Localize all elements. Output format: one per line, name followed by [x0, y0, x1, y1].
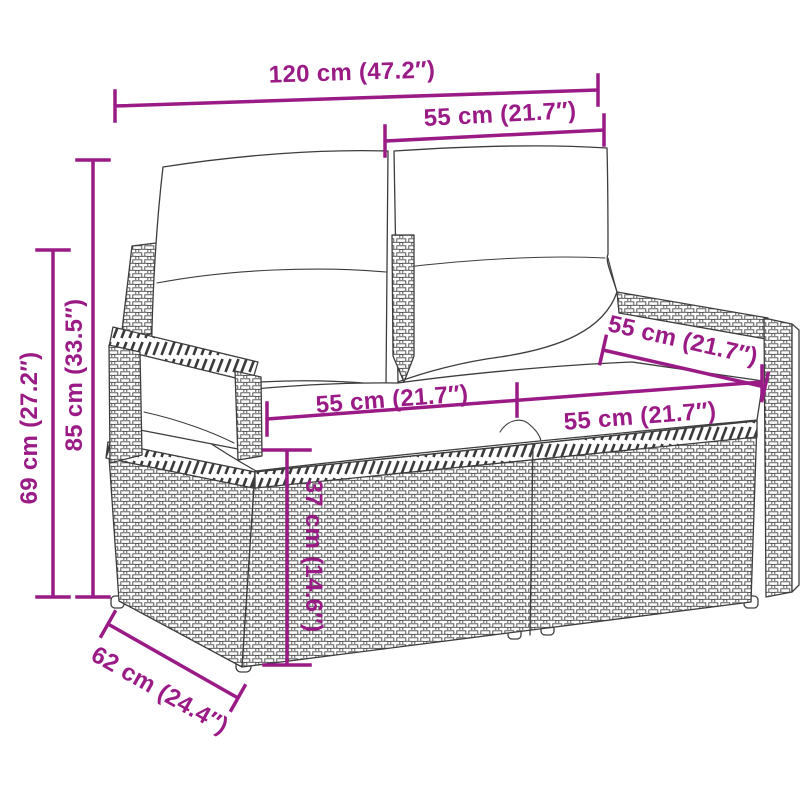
armrest-left-post — [235, 371, 262, 460]
dim-label-overall-height: 85 cm (33.5″) — [61, 299, 88, 452]
dim-label-overall-depth: 62 cm (24.4″) — [87, 641, 233, 740]
back-post-center — [392, 235, 414, 382]
sofa-dimension-figure: 120 cm (47.2″) 55 cm (21.7″) 85 cm (33.5… — [0, 0, 800, 800]
dimension-diagram: 120 cm (47.2″) 55 cm (21.7″) 85 cm (33.5… — [0, 0, 800, 800]
dim-label-seat-height: 37 cm (14.6″) — [300, 480, 327, 633]
dim-label-backrest-width: 55 cm (21.7″) — [423, 97, 577, 132]
base — [106, 421, 757, 667]
dim-label-armrest-height: 69 cm (27.2″) — [16, 352, 43, 505]
back-cushion-right — [394, 146, 617, 382]
armrest-right-outer-face — [792, 324, 799, 592]
armrest-left-outer-panel — [109, 345, 142, 463]
armrest-right-panel — [764, 318, 792, 597]
dim-label-overall-width: 120 cm (47.2″) — [268, 56, 435, 88]
